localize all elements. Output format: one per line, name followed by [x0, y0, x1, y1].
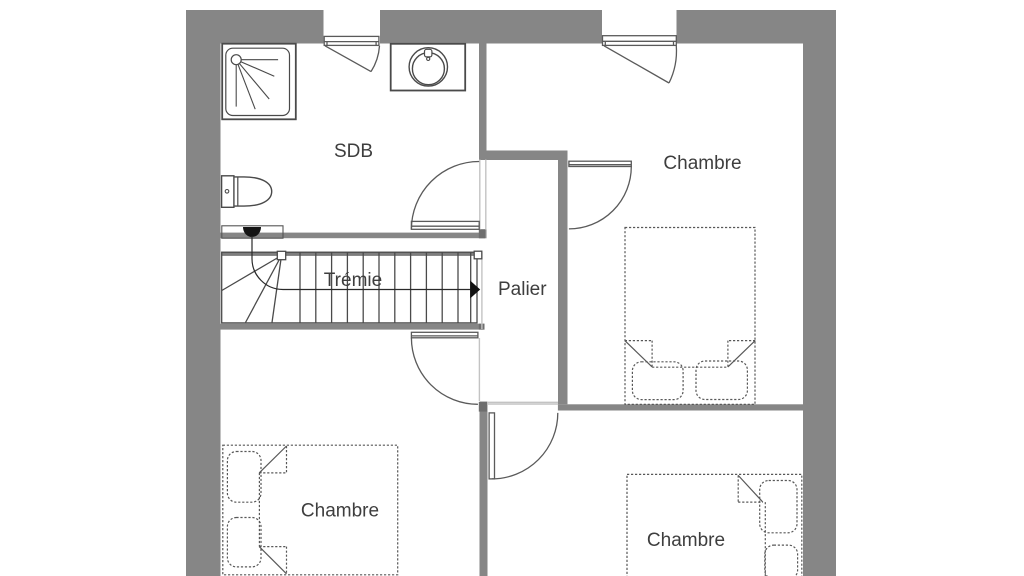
svg-text:Chambre: Chambre	[647, 530, 725, 551]
svg-text:SDB: SDB	[334, 141, 373, 162]
svg-text:Trémie: Trémie	[324, 270, 382, 291]
svg-text:Chambre: Chambre	[301, 501, 379, 522]
svg-text:Palier: Palier	[498, 279, 547, 300]
svg-text:Chambre: Chambre	[663, 153, 741, 174]
